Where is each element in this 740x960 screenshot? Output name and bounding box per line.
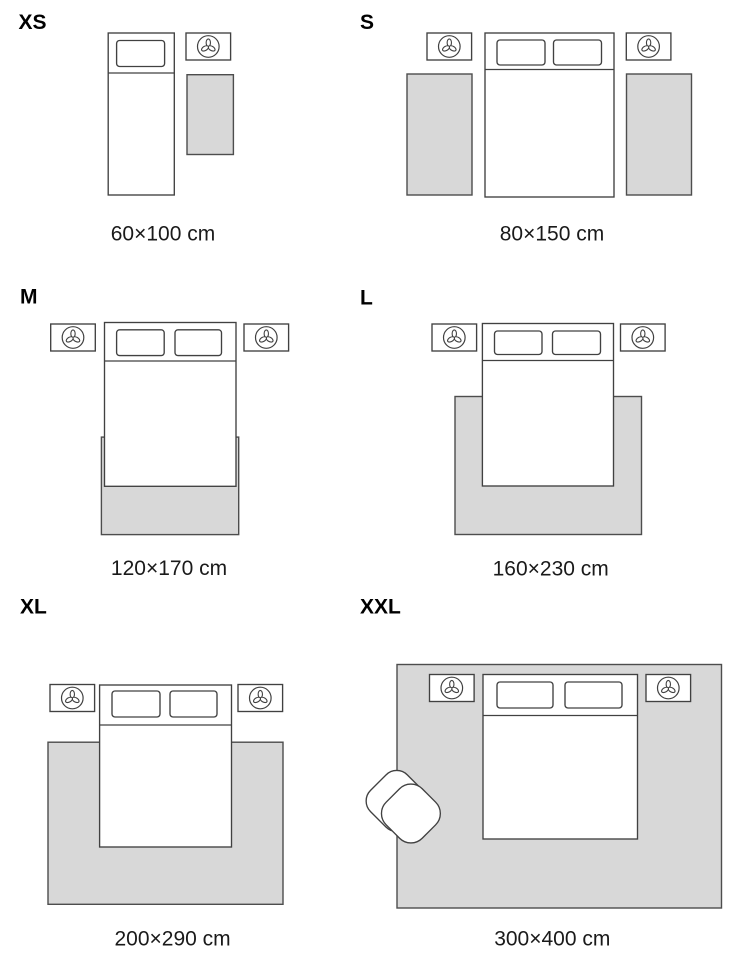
svg-text:120×170 cm: 120×170 cm [111, 557, 227, 580]
svg-text:S: S [360, 11, 374, 34]
svg-text:160×230 cm: 160×230 cm [493, 557, 609, 580]
svg-text:200×290 cm: 200×290 cm [115, 927, 231, 950]
svg-text:L: L [360, 287, 373, 310]
svg-text:XXL: XXL [360, 596, 401, 619]
svg-text:XS: XS [19, 11, 47, 34]
svg-text:300×400 cm: 300×400 cm [494, 927, 610, 950]
svg-text:M: M [20, 286, 38, 309]
svg-text:80×150 cm: 80×150 cm [500, 222, 605, 245]
svg-text:60×100 cm: 60×100 cm [111, 222, 216, 245]
svg-text:XL: XL [20, 596, 47, 619]
